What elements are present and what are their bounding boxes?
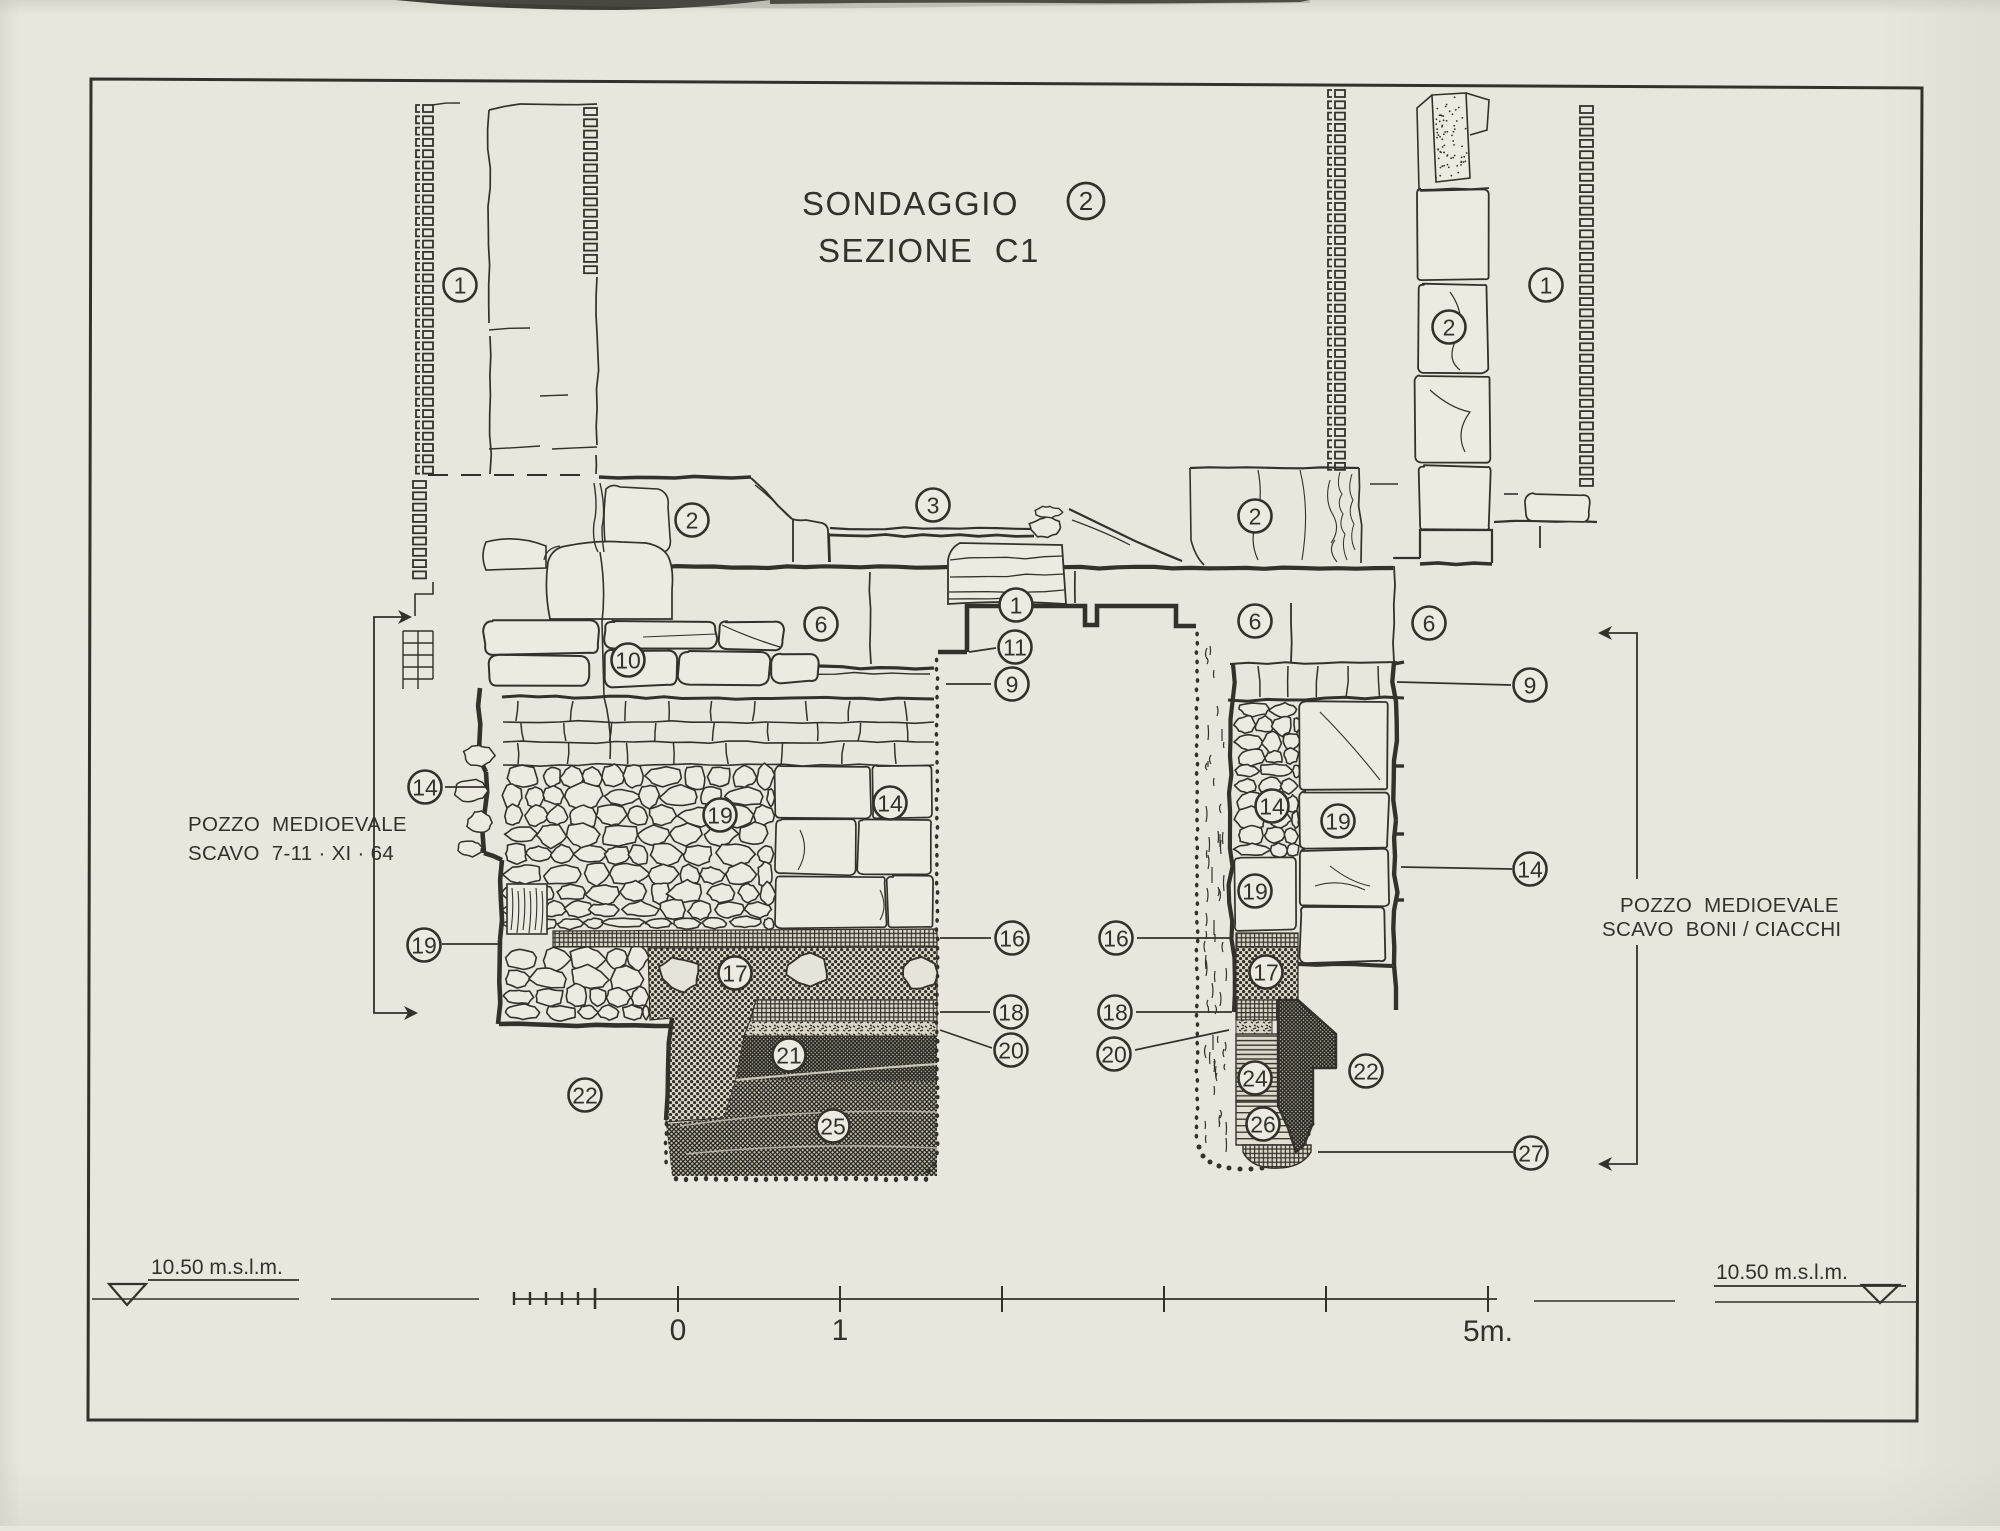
svg-text:24: 24 (1242, 1065, 1268, 1091)
svg-text:27: 27 (1518, 1140, 1544, 1166)
svg-text:SCAVO BONI / CIACCHI: SCAVO BONI / CIACCHI (1602, 918, 1841, 941)
svg-text:14: 14 (1517, 856, 1543, 882)
svg-text:16: 16 (999, 925, 1025, 951)
svg-text:2: 2 (1249, 503, 1262, 529)
svg-text:SEZIONE C1: SEZIONE C1 (818, 232, 1040, 269)
svg-text:10.50 m.s.l.m.: 10.50 m.s.l.m. (1716, 1261, 1848, 1284)
svg-text:SONDAGGIO: SONDAGGIO (802, 185, 1019, 222)
svg-text:20: 20 (1101, 1041, 1127, 1067)
svg-text:19: 19 (1325, 808, 1351, 834)
svg-text:21: 21 (776, 1042, 802, 1068)
svg-text:17: 17 (1253, 959, 1279, 985)
svg-text:6: 6 (1249, 608, 1262, 634)
svg-text:20: 20 (998, 1037, 1024, 1063)
svg-text:0: 0 (670, 1314, 687, 1347)
svg-text:6: 6 (815, 611, 828, 637)
svg-text:6: 6 (1423, 610, 1436, 636)
svg-text:POZZO MEDIOEVALE: POZZO MEDIOEVALE (188, 813, 407, 836)
svg-text:25: 25 (820, 1113, 846, 1139)
svg-text:19: 19 (411, 932, 437, 958)
svg-text:22: 22 (572, 1082, 598, 1108)
svg-text:14: 14 (877, 790, 903, 816)
svg-text:18: 18 (998, 999, 1024, 1025)
svg-text:2: 2 (1443, 314, 1456, 340)
svg-text:2: 2 (686, 507, 699, 533)
svg-text:9: 9 (1006, 671, 1019, 697)
svg-text:14: 14 (412, 774, 438, 800)
svg-text:22: 22 (1353, 1058, 1379, 1084)
svg-text:17: 17 (722, 960, 748, 986)
svg-text:14: 14 (1259, 793, 1285, 819)
svg-text:5m.: 5m. (1463, 1315, 1513, 1348)
svg-text:9: 9 (1524, 672, 1537, 698)
svg-text:19: 19 (707, 802, 733, 828)
svg-text:10.50 m.s.l.m.: 10.50 m.s.l.m. (151, 1256, 283, 1279)
svg-text:1: 1 (1010, 592, 1023, 618)
svg-text:2: 2 (1079, 186, 1093, 216)
svg-text:1: 1 (454, 272, 467, 298)
svg-text:10: 10 (615, 647, 641, 673)
svg-text:16: 16 (1103, 925, 1129, 951)
svg-text:19: 19 (1242, 878, 1268, 904)
svg-text:11: 11 (1003, 634, 1027, 660)
svg-text:1: 1 (832, 1314, 849, 1347)
svg-text:3: 3 (927, 492, 940, 518)
svg-text:26: 26 (1250, 1111, 1276, 1137)
svg-text:18: 18 (1102, 999, 1128, 1025)
svg-text:POZZO MEDIOEVALE: POZZO MEDIOEVALE (1620, 894, 1839, 917)
svg-text:SCAVO 7-11 · XI · 64: SCAVO 7-11 · XI · 64 (188, 842, 394, 865)
svg-text:1: 1 (1540, 272, 1553, 298)
